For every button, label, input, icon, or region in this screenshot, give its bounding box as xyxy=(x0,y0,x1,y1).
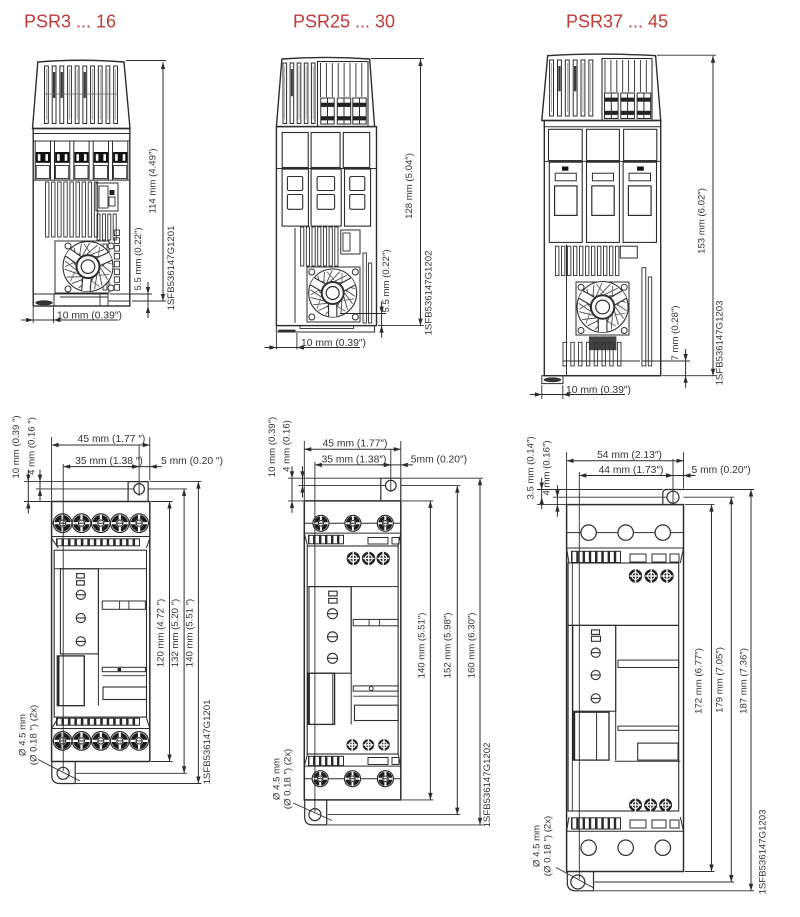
svg-text:44 mm (1.73″): 44 mm (1.73″) xyxy=(599,465,664,476)
svg-text:PSR25 ... 30: PSR25 ... 30 xyxy=(293,12,395,32)
svg-text:1SFB536147G1202: 1SFB536147G1202 xyxy=(482,743,493,828)
svg-text:1SFB536147G1201: 1SFB536147G1201 xyxy=(166,226,177,311)
svg-text:4 mm (0.16 ″): 4 mm (0.16 ″) xyxy=(27,417,38,475)
svg-text:3.5 mm (0.14″): 3.5 mm (0.14″) xyxy=(526,436,537,499)
svg-text:5mm (0.20″): 5mm (0.20″) xyxy=(411,454,467,465)
svg-text:153 mm (6.02″): 153 mm (6.02″) xyxy=(697,188,708,254)
svg-text:Ø 4.5 mm: Ø 4.5 mm xyxy=(18,714,29,756)
svg-text:45 mm (1.77″): 45 mm (1.77″) xyxy=(323,439,388,450)
svg-text:187 mm (7.36″): 187 mm (7.36″) xyxy=(739,648,750,714)
svg-text:132 mm (5.20 ″): 132 mm (5.20 ″) xyxy=(170,599,181,667)
svg-text:10 mm (0.39 ″): 10 mm (0.39 ″) xyxy=(11,415,22,478)
svg-text:35 mm (1.38″): 35 mm (1.38″) xyxy=(322,454,387,465)
svg-text:4 mm (0.16): 4 mm (0.16) xyxy=(282,420,293,472)
svg-text:1SFB536147G1203: 1SFB536147G1203 xyxy=(758,810,769,895)
svg-text:140 mm (5.51″): 140 mm (5.51″) xyxy=(417,613,428,679)
svg-text:(Ø 0.18 ″) (2x): (Ø 0.18 ″) (2x) xyxy=(543,816,554,876)
svg-text:1SFB536147G1203: 1SFB536147G1203 xyxy=(715,301,726,386)
svg-text:5 mm (0.20″): 5 mm (0.20″) xyxy=(692,465,751,476)
svg-text:5.5 mm (0.22″): 5.5 mm (0.22″) xyxy=(133,227,144,290)
svg-text:PSR37 ... 45: PSR37 ... 45 xyxy=(566,12,668,32)
svg-text:10 mm (0.39″): 10 mm (0.39″) xyxy=(267,417,278,477)
svg-text:179 mm (7.05″): 179 mm (7.05″) xyxy=(715,647,726,713)
svg-text:140 mm (5.51 ″): 140 mm (5.51 ″) xyxy=(184,599,195,667)
svg-text:(Ø 0.18 ″) (2x): (Ø 0.18 ″) (2x) xyxy=(283,749,294,809)
svg-text:114 mm (4.49″): 114 mm (4.49″) xyxy=(148,148,159,213)
svg-text:10 mm (0.39″): 10 mm (0.39″) xyxy=(301,338,366,349)
svg-text:(Ø 0.18 ″) (2x): (Ø 0.18 ″) (2x) xyxy=(29,705,40,765)
svg-text:120 mm (4.72 ″): 120 mm (4.72 ″) xyxy=(156,599,167,667)
svg-text:45 mm (1.77 ″): 45 mm (1.77 ″) xyxy=(78,434,146,445)
svg-text:5.5 mm (0.22″): 5.5 mm (0.22″) xyxy=(381,249,392,312)
svg-text:PSR3 ... 16: PSR3 ... 16 xyxy=(24,12,116,32)
svg-text:10 mm (0.39″): 10 mm (0.39″) xyxy=(566,385,631,396)
svg-text:160 mm (6.30″): 160 mm (6.30″) xyxy=(467,613,478,679)
svg-text:1SFB536147G1201: 1SFB536147G1201 xyxy=(202,700,213,785)
svg-text:128 mm (5.04″): 128 mm (5.04″) xyxy=(404,153,415,219)
svg-text:1SFB536147G1202: 1SFB536147G1202 xyxy=(424,251,435,336)
svg-text:172 mm (6.77″): 172 mm (6.77″) xyxy=(694,648,705,714)
svg-text:Ø 4.5 mm: Ø 4.5 mm xyxy=(272,758,283,800)
svg-text:5 mm (0.20 ″): 5 mm (0.20 ″) xyxy=(161,456,223,467)
svg-text:Ø 4.5 mm: Ø 4.5 mm xyxy=(532,825,543,867)
svg-text:54 mm (2.13″): 54 mm (2.13″) xyxy=(597,450,662,461)
svg-text:4 mm (0.16″): 4 mm (0.16″) xyxy=(542,440,553,495)
svg-text:7 mm (0.28″): 7 mm (0.28″) xyxy=(670,305,681,360)
svg-text:152 mm (5.98″): 152 mm (5.98″) xyxy=(443,613,454,679)
svg-text:10 mm (0.39″): 10 mm (0.39″) xyxy=(57,311,122,322)
